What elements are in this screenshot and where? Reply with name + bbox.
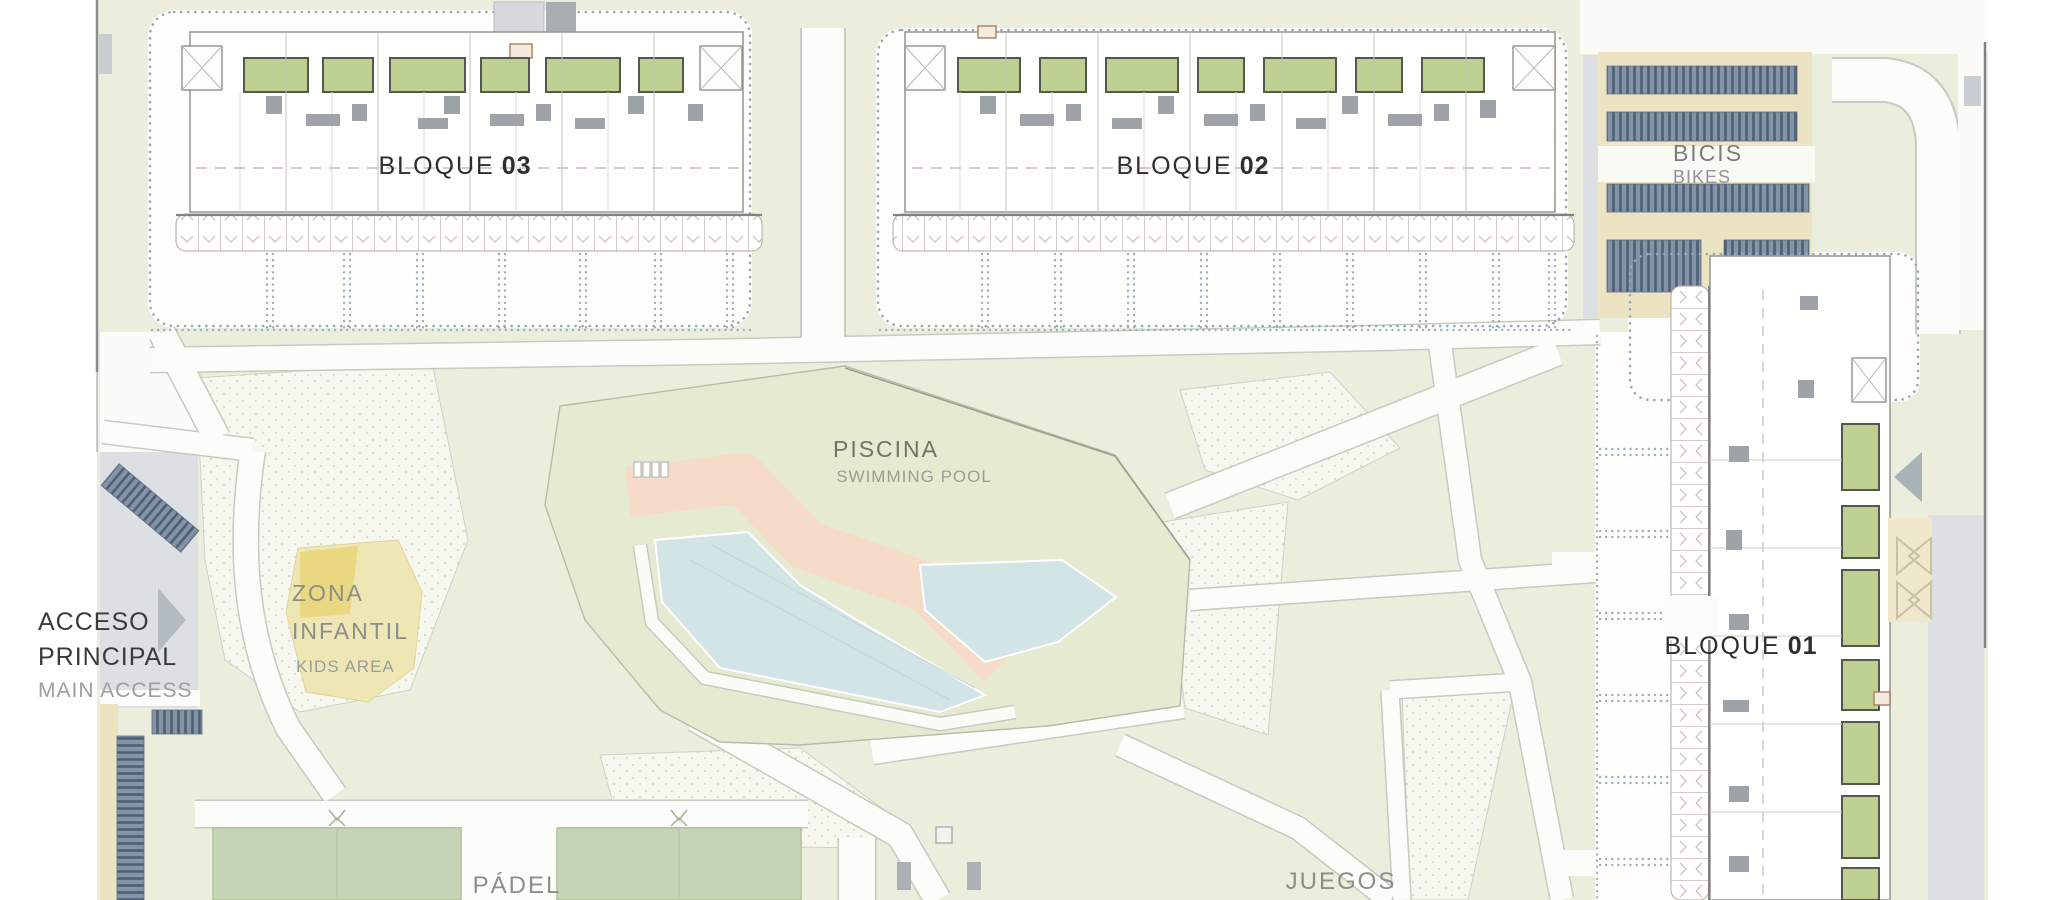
entrance-icon: [978, 26, 996, 38]
terrace-strip: [176, 214, 762, 251]
bloque-01-label: BLOQUE01: [1664, 634, 1817, 659]
bike-rack-row: [152, 710, 202, 734]
games-bench: [967, 862, 981, 890]
bike-rack-row: [1607, 112, 1797, 141]
games-label: JUEGOS: [1286, 870, 1397, 894]
pool-label-en: SWIMMING POOL: [836, 468, 992, 485]
kids-label-en: KIDS AREA: [296, 658, 395, 675]
bloque-01-name: BLOQUE: [1664, 632, 1780, 660]
bloque-01-number: 01: [1788, 632, 1818, 660]
terrace-strip: [893, 214, 1574, 251]
bloque-02-label: BLOQUE02: [1116, 154, 1269, 179]
boundary-marker-ne: [1964, 76, 1981, 106]
pool-label-es: PISCINA: [833, 438, 939, 461]
boundary-marker-w: [99, 34, 112, 74]
bikes-label-en: BIKES: [1673, 168, 1731, 186]
kids-label-es-2: INFANTIL: [292, 620, 409, 643]
terrace-strip: [1671, 286, 1709, 900]
access-label-en: MAIN ACCESS: [38, 680, 193, 701]
bloque-03-name: BLOQUE: [378, 152, 494, 180]
east-service-road: [1928, 515, 1984, 900]
entrance-icon: [510, 44, 532, 58]
bloque-02-number: 02: [1240, 152, 1270, 180]
bloque-03-label: BLOQUE03: [378, 154, 531, 179]
bike-rack-row: [1607, 184, 1809, 212]
bloque-02-name: BLOQUE: [1116, 152, 1232, 180]
bike-rack-row: [1607, 66, 1797, 94]
kids-label-es-1: ZONA: [292, 582, 364, 605]
games-bench: [897, 862, 911, 890]
bike-rack-column: [117, 736, 144, 900]
site-plan-drawing: [0, 0, 2048, 900]
bloque-03-number: 03: [502, 152, 532, 180]
north-east-margin: [1580, 0, 1988, 54]
entrance-icon: [1874, 692, 1890, 705]
access-label-es-2: PRINCIPAL: [38, 645, 177, 670]
bike-rack-row: [1607, 240, 1701, 292]
south-west-beige-strip: [100, 704, 118, 900]
padel-label: PÁDEL: [473, 874, 562, 898]
games-equipment-icon: [936, 827, 952, 843]
bikes-label-es: BICIS: [1673, 142, 1743, 165]
access-label-es-1: ACCESO: [38, 610, 150, 635]
masterplan-canvas: BLOQUE03 BLOQUE02 BLOQUE01 BICIS BIKES P…: [0, 0, 2048, 900]
